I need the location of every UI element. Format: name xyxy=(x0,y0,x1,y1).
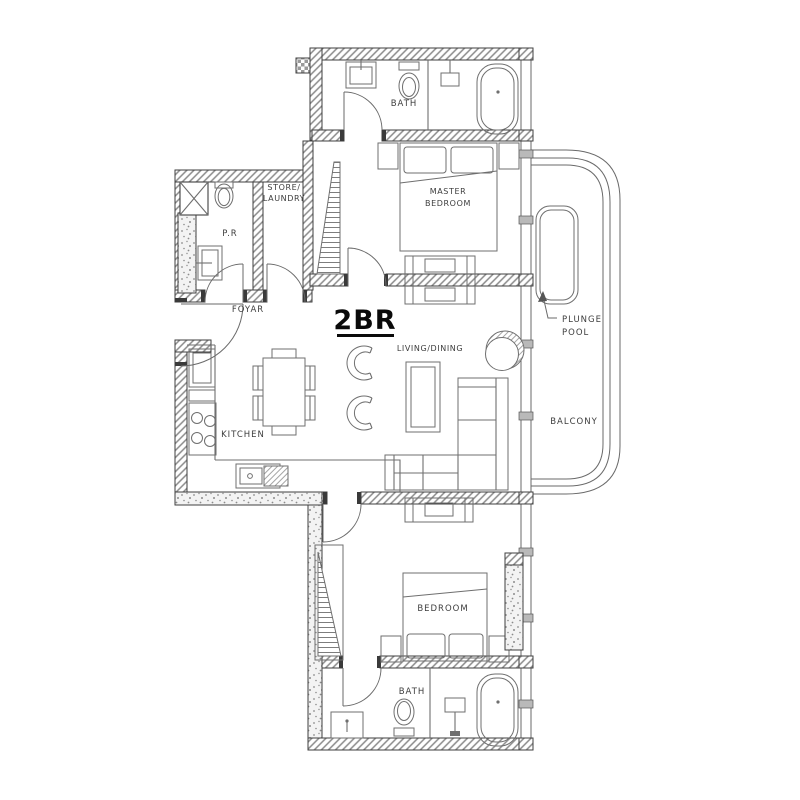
bath-door xyxy=(343,668,381,706)
living-furniture xyxy=(347,331,524,490)
bathtub xyxy=(477,674,518,746)
bed xyxy=(403,573,487,661)
planter-ledge xyxy=(505,553,523,650)
master-bath-label: BATH xyxy=(391,99,418,109)
wardrobe xyxy=(317,162,340,274)
bedroom-label: BEDROOM xyxy=(417,604,468,614)
toilet xyxy=(399,62,419,99)
exterior-walls xyxy=(175,48,521,750)
balcony-label: BALCONY xyxy=(550,417,598,427)
bedroom-furniture xyxy=(315,498,523,662)
bedroom-door xyxy=(323,504,361,542)
bathroom-sink xyxy=(331,712,363,738)
toilet xyxy=(215,182,233,208)
kitchen-fixtures xyxy=(187,345,400,492)
shower xyxy=(445,698,465,736)
coffee-table xyxy=(406,362,440,432)
store-laundry-label-line2: LAUNDRY xyxy=(263,194,305,203)
master-bedroom-label-line2: BEDROOM xyxy=(425,199,471,208)
bath-fixtures xyxy=(331,668,518,746)
master-bedroom-label-line1: MASTER xyxy=(430,187,467,196)
nightstand xyxy=(378,143,398,169)
living-dining-label: LIVING/DINING xyxy=(397,344,463,353)
shower xyxy=(441,60,459,86)
bathroom-sink xyxy=(346,60,376,88)
floor-plan: BATH STORE/ LAUNDRY P.R MASTER BEDROOM F… xyxy=(0,0,800,800)
master-bedroom-door xyxy=(348,248,386,286)
master-bath-door xyxy=(344,92,382,130)
duct-shaft xyxy=(180,182,208,215)
foyer-label: FOYAR xyxy=(232,305,264,315)
stove xyxy=(189,403,216,455)
toilet xyxy=(394,699,414,736)
plunge-pool xyxy=(536,206,578,318)
cabinet xyxy=(189,390,215,401)
armchair xyxy=(347,346,372,380)
store-door xyxy=(267,264,305,302)
kitchen-sink xyxy=(236,464,288,488)
kitchen-label: KITCHEN xyxy=(221,430,265,440)
wardrobe xyxy=(315,545,343,660)
sofa xyxy=(385,378,508,490)
plunge-pool-label-line2: POOL xyxy=(562,328,589,338)
store-laundry-label-line1: STORE/ xyxy=(267,183,300,192)
powder-room-door xyxy=(205,264,243,302)
room-labels: BATH STORE/ LAUNDRY P.R MASTER BEDROOM F… xyxy=(221,99,602,697)
master-bed xyxy=(400,143,497,251)
fridge xyxy=(189,349,215,387)
bathtub xyxy=(477,64,518,134)
nightstand xyxy=(499,143,519,169)
powder-sink xyxy=(196,246,222,280)
title-underline xyxy=(337,334,394,337)
master-bath xyxy=(346,60,518,134)
powder-room-label: P.R xyxy=(222,229,237,239)
dining-table xyxy=(253,349,315,435)
plunge-pool-label-line1: PLUNGE xyxy=(562,315,602,325)
unit-type-title: 2BR xyxy=(333,305,396,336)
armchair xyxy=(347,396,372,430)
planter xyxy=(486,331,525,371)
bath-label: BATH xyxy=(399,687,426,697)
